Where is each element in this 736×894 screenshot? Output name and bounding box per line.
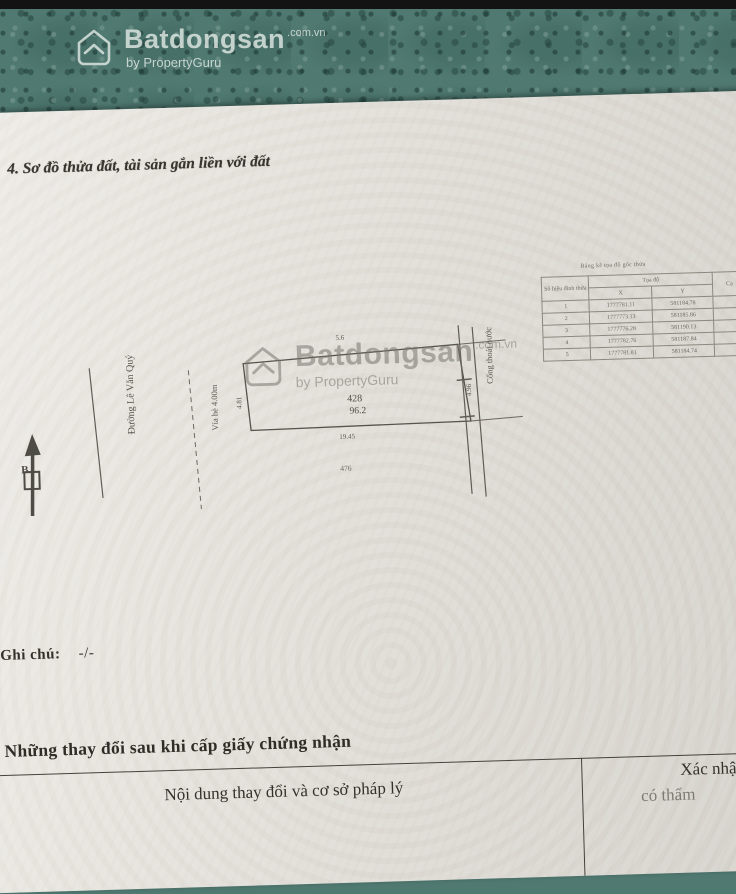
vertex-number: 5 — [543, 348, 591, 361]
dim-top-label: 5.6 — [335, 334, 344, 342]
edge-cell — [715, 343, 736, 356]
coord-table-caption: Bảng kê tọa độ góc thửa — [580, 262, 645, 270]
section4-title: 4. Sơ đồ thửa đất, tài sản gắn liền với … — [7, 153, 270, 179]
note-label: , Ghi chú: — [0, 646, 61, 664]
edge-cell — [714, 319, 736, 332]
coordinate-table: Số hiệu đỉnh thửa Tọa độ Cạ X Y 1 177778… — [541, 271, 736, 362]
coord-y: 581184.74 — [654, 344, 715, 358]
photo-top-black-bar — [0, 0, 736, 9]
changes-table-divider — [581, 758, 586, 876]
note-line: , Ghi chú: -/- — [0, 645, 95, 665]
plot-area-label: 96.2 — [349, 406, 366, 416]
changes-col2-header-line2: có thẩm — [641, 784, 696, 806]
dim-bottom-label: 19.45 — [339, 432, 355, 440]
col-vertex-header: Số hiệu đỉnh thửa — [541, 276, 589, 301]
changes-col2-header-line1: Xác nhận c — [680, 758, 736, 780]
certificate-page: 4. Sơ đồ thửa đất, tài sản gắn liền với … — [0, 90, 736, 893]
north-letter: B — [21, 464, 29, 476]
changes-title: Những thay đổi sau khi cấp giấy chứng nh… — [4, 731, 351, 762]
note-value: -/- — [78, 645, 94, 661]
edge-cell — [714, 307, 736, 320]
edge-cell — [714, 331, 736, 344]
brand-suffix: .com.vn — [475, 338, 517, 351]
brand-name: Batdongsan — [295, 337, 474, 372]
batdongsan-watermark-top: Batdongsan .com.vn by PropertyGuru — [72, 26, 326, 70]
col-edge-header: Cạ — [713, 271, 736, 296]
dim-left-label: 4.81 — [235, 383, 244, 423]
brand-name: Batdongsan — [124, 26, 285, 53]
dim-right-label: 4.96 — [464, 370, 473, 410]
brand-byline: by PropertyGuru — [126, 56, 326, 69]
north-arrow-icon — [11, 430, 50, 521]
batdongsan-watermark-diagram: Batdongsan .com.vn by PropertyGuru — [239, 336, 519, 392]
adjacent-plot-label: 476 — [340, 464, 352, 473]
brand-house-icon — [72, 26, 116, 70]
coord-x: 1777781.81 — [591, 346, 654, 360]
brand-suffix: .com.vn — [287, 28, 326, 39]
edge-cell — [713, 295, 736, 308]
plot-number-label: 428 — [347, 393, 362, 404]
brand-house-icon — [239, 342, 288, 391]
